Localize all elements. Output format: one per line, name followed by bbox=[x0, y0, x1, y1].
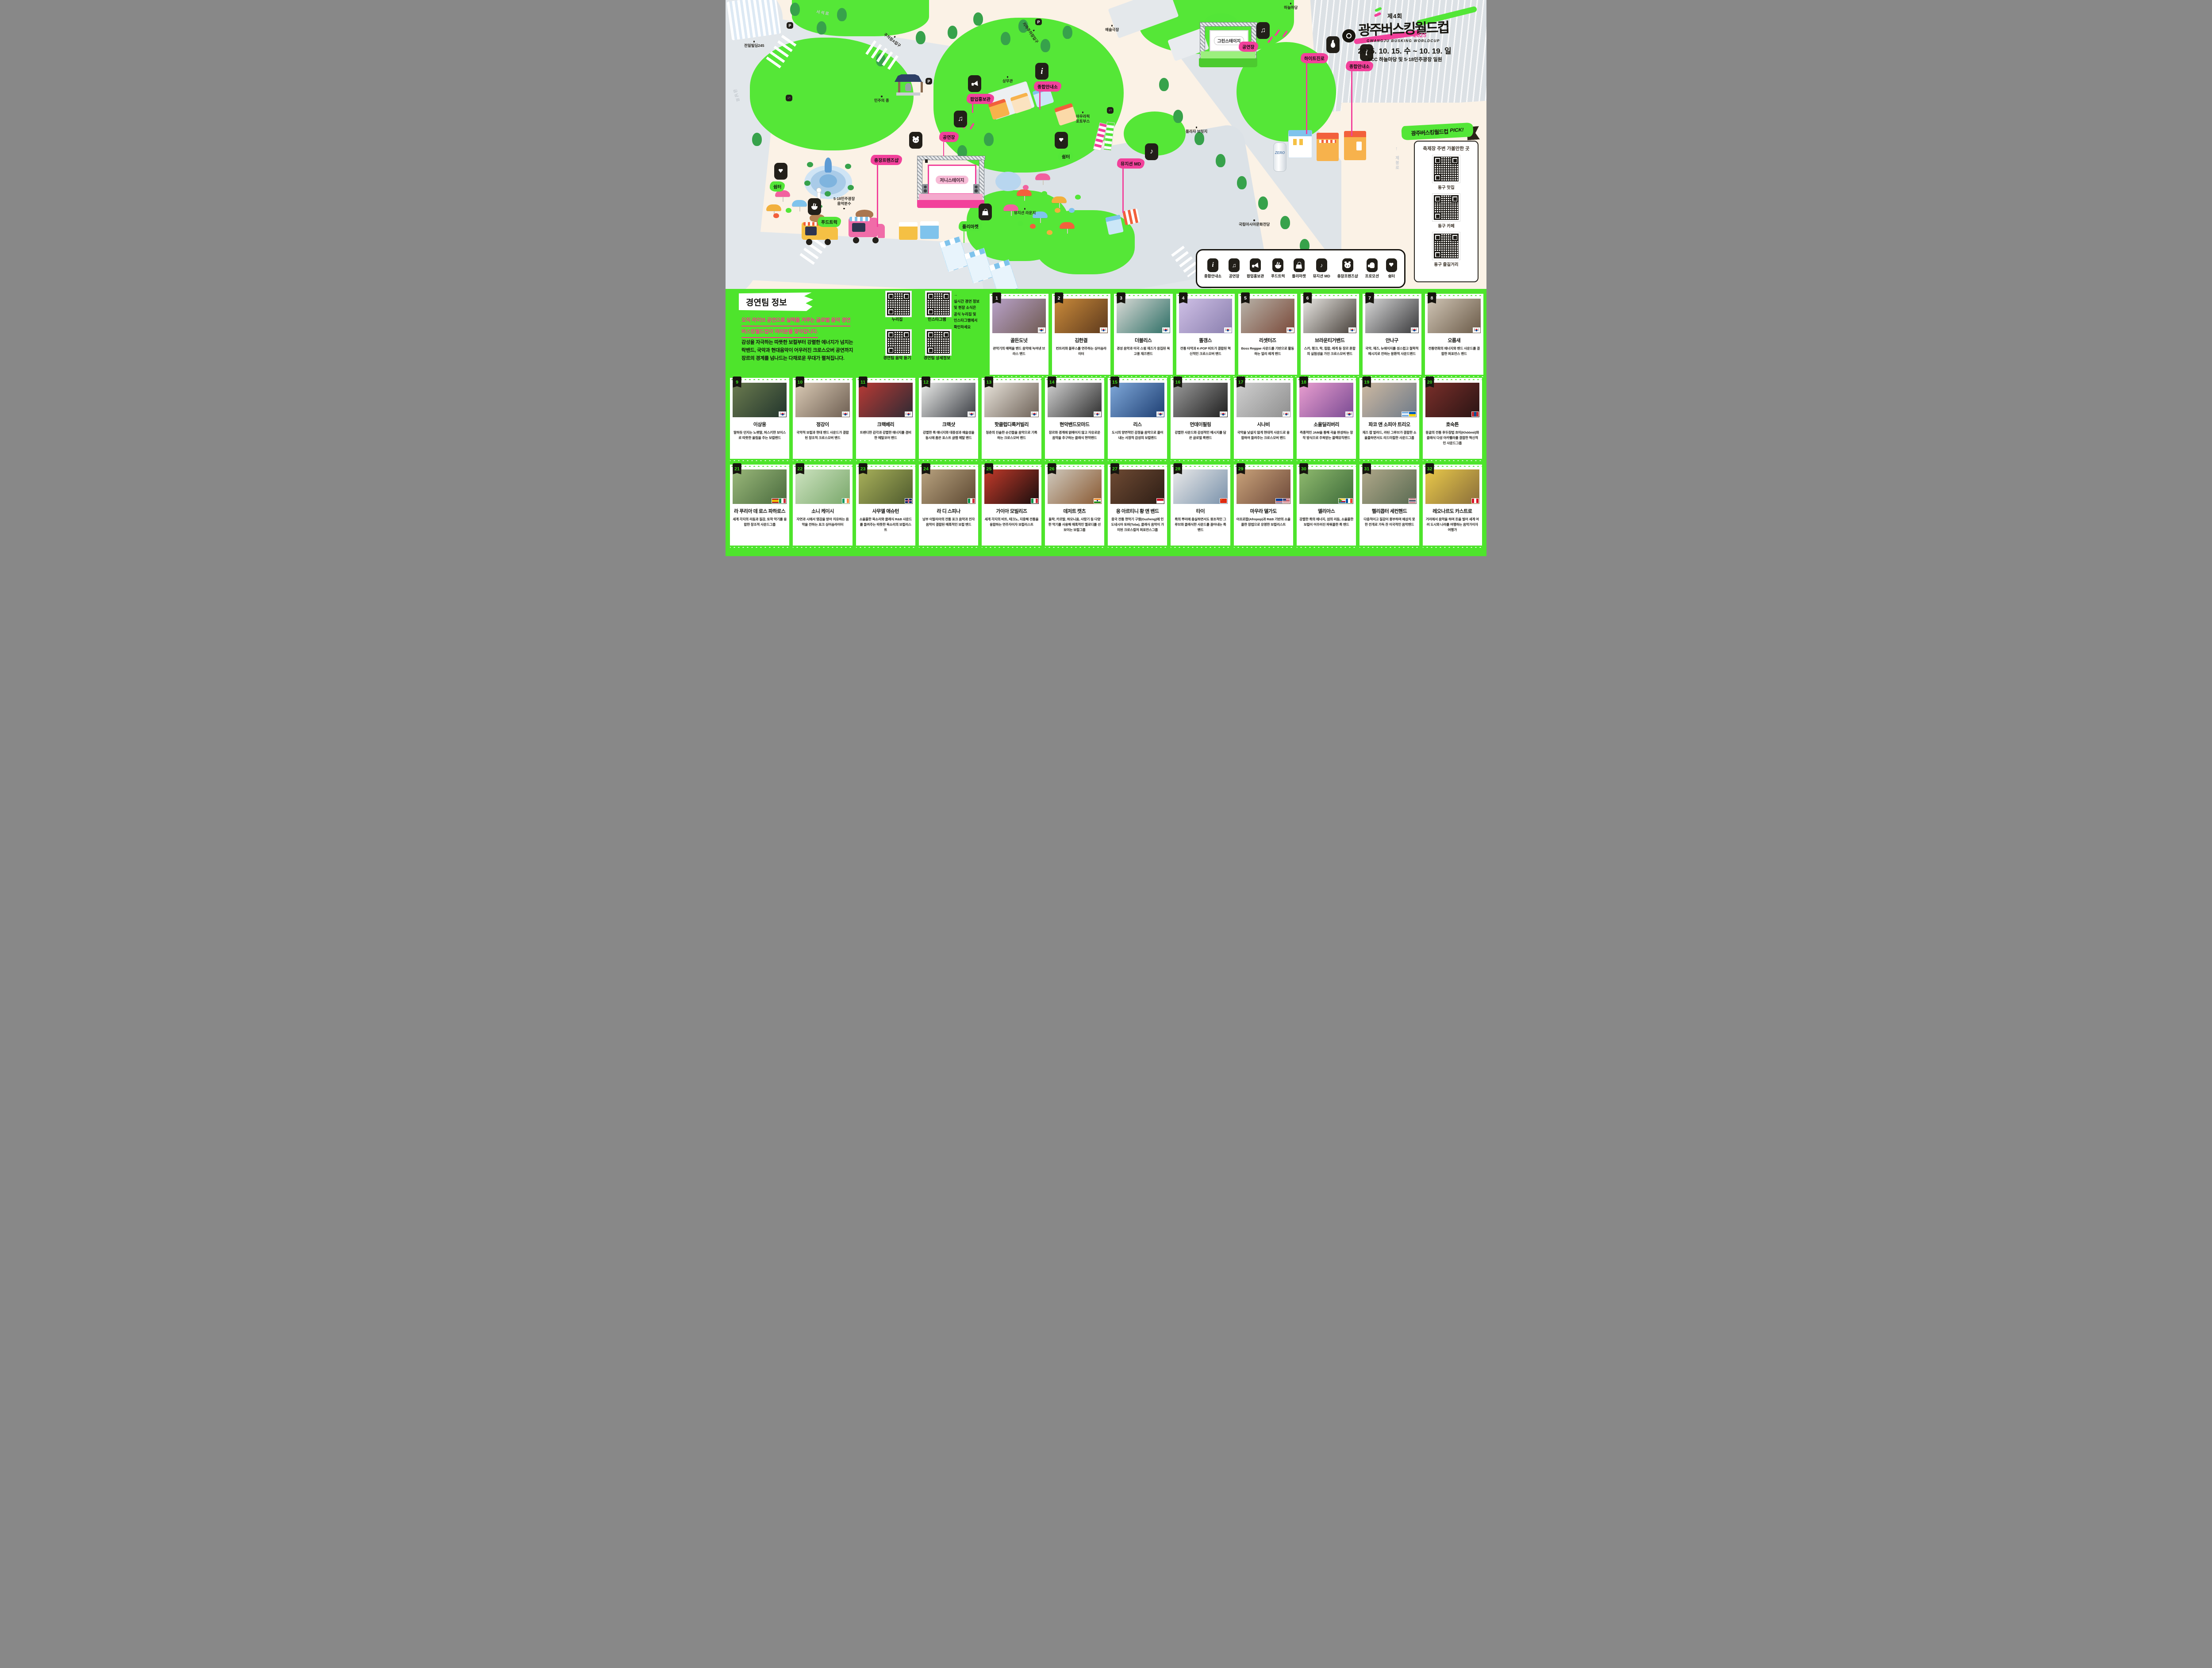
pick-qr-item: 동구 맛집 bbox=[1415, 155, 1478, 190]
flag-kr-icon bbox=[1031, 412, 1038, 417]
team-desc: 국악, 재즈, 뉴에이지를 성스럽고 철학적 메시지로 전하는 몽환적 사운드밴… bbox=[1363, 346, 1421, 357]
festival-poster: 저니스테이지 그린스테이지 bbox=[726, 0, 1486, 556]
legend-item: 프로모션 bbox=[1365, 258, 1379, 279]
team-country-flags bbox=[1472, 412, 1479, 417]
team-number-flag: 9 bbox=[733, 377, 741, 388]
team-photo bbox=[1299, 383, 1353, 417]
team-card[interactable]: 15 리스 도시의 양면적인 감정을 음악으로 풀어내는 서정적 감성의 보컬밴… bbox=[1108, 380, 1167, 459]
flag-kr-icon bbox=[1349, 328, 1356, 333]
team-number-flag: 14 bbox=[1048, 377, 1056, 388]
team-desc: 거리에서 음악을 하며 돈을 벌어 세계 여러 도시와 나라를 여행하는 음악가… bbox=[1423, 517, 1482, 533]
team-country-flags bbox=[1349, 328, 1356, 333]
team-country-flags bbox=[1225, 328, 1231, 333]
team-photo bbox=[795, 383, 849, 417]
qr-homepage[interactable] bbox=[886, 291, 911, 317]
team-country-flags bbox=[842, 499, 849, 503]
bean-bag bbox=[1023, 185, 1029, 190]
team-name: 데저트 캣츠 bbox=[1045, 507, 1104, 515]
team-number-flag: 21 bbox=[733, 463, 741, 474]
flag-kr-icon bbox=[1163, 328, 1169, 333]
teams-section: 경연팀 정보 오직 라이브 공연으로 실력을 겨루는 글로벌 음악 경연 버스킹… bbox=[726, 289, 1486, 556]
foodtruck-bowl-icon bbox=[808, 198, 821, 215]
team-country-flags bbox=[1411, 328, 1418, 333]
flag-kr-icon bbox=[968, 412, 975, 417]
team-name: 브라운티거밴드 bbox=[1301, 337, 1359, 344]
team-country-flags bbox=[968, 499, 975, 503]
team-name: 리스 bbox=[1108, 421, 1167, 428]
flag-kr-icon bbox=[1220, 412, 1227, 417]
qr-note: → 실시간 경연 정보 및 현장 소식은 공식 누리집 및 인스타그램에서 확인… bbox=[954, 292, 983, 330]
flag-kr-icon bbox=[842, 412, 849, 417]
qr-label: 인스타그램 bbox=[921, 316, 953, 322]
team-desc: 록의 뿌리에 충실하면서도 원초적인 그루브와 클래식한 사운드를 끌어내는 록… bbox=[1171, 517, 1230, 533]
team-desc: 관악기의 매력을 밴드 음악에 녹여낸 브라스 밴드 bbox=[990, 346, 1048, 357]
flag-stage: 공연장 bbox=[1239, 42, 1258, 52]
team-desc: 국악을 낯설지 않게 현대적 사운드로 융합하여 들려주는 크로스오버 밴드 bbox=[1234, 430, 1293, 441]
tree bbox=[1173, 110, 1183, 123]
legend-label: 충장프렌즈샵 bbox=[1337, 273, 1358, 279]
team-country-flags bbox=[779, 412, 786, 417]
team-country-flags bbox=[1287, 328, 1294, 333]
info-tent-orange bbox=[1344, 131, 1366, 160]
team-name: 레오나르도 카스트로 bbox=[1423, 507, 1482, 515]
team-card[interactable]: 26 데저트 캣츠 돌락, 카르탈, 하모니움, 사랑기 등 다양한 악기를 사… bbox=[1045, 467, 1104, 546]
tree bbox=[1041, 39, 1050, 52]
team-card[interactable]: 17 시나비 국악을 낯설지 않게 현대적 사운드로 융합하여 들려주는 크로스… bbox=[1234, 380, 1293, 459]
team-card[interactable]: 16 먼데이필링 강렬한 사운드와 감성적인 메시지를 담은 글로벌 록밴드 bbox=[1171, 380, 1230, 459]
team-desc: 강렬한 록 에너지와 대중성과 예술성을 동시에 품은 포스트 글램 메탈 밴드 bbox=[919, 430, 978, 441]
team-name: 크랙베리 bbox=[856, 421, 915, 428]
team-photo bbox=[1237, 383, 1290, 417]
team-name: 사무엘 애슈턴 bbox=[856, 507, 915, 515]
flag-pe-icon bbox=[1472, 499, 1479, 503]
team-desc: 전통연희의 에너지와 밴드 사운드를 결합한 퍼포먼스 밴드 bbox=[1425, 346, 1484, 357]
team-desc: 전통 타악과 K-POP 비트가 결합된 혁신적인 크로스오버 밴드 bbox=[1176, 346, 1235, 357]
flag-fleamarket: 플리마켓 bbox=[959, 221, 982, 231]
team-country-flags bbox=[1100, 328, 1107, 333]
team-card[interactable]: 30 엘리아스 강렬한 록의 에너지, 섬의 리듬, 소울풀한 보컬이 어우러진… bbox=[1297, 467, 1356, 546]
journey-stage-label: 저니스테이지 bbox=[936, 176, 968, 184]
flag-kr-icon bbox=[1287, 328, 1294, 333]
team-number-flag: 20 bbox=[1425, 377, 1434, 388]
team-card[interactable]: 23 사무엘 애슈턴 소울풀한 목소리와 클래식 R&B 사운드를 들려주는 따… bbox=[856, 467, 915, 546]
team-desc: 즉흥적인 JAM을 통해 곡을 완성하는 창작 방식으로 주목받는 블랙뮤직밴드 bbox=[1297, 430, 1356, 441]
team-number-flag: 22 bbox=[795, 463, 804, 474]
team-country-flags bbox=[1409, 499, 1416, 503]
team-photo bbox=[1110, 383, 1164, 417]
team-photo bbox=[984, 383, 1038, 417]
team-name: 정강이 bbox=[793, 421, 852, 428]
tree bbox=[1001, 32, 1010, 45]
bean-bag bbox=[1030, 224, 1036, 229]
team-country-flags bbox=[1346, 412, 1352, 417]
team-photo bbox=[859, 469, 913, 504]
legend-label: 팝업홍보관 bbox=[1247, 273, 1264, 279]
flag-kr-icon bbox=[1283, 412, 1290, 417]
team-card[interactable]: 28 타이 록의 뿌리에 충실하면서도 원초적인 그루브와 클래식한 사운드를 … bbox=[1171, 467, 1230, 546]
umbrella bbox=[766, 204, 781, 211]
bean-bag bbox=[1069, 208, 1075, 213]
legend-item: ♪ 뮤지션 MD bbox=[1313, 258, 1330, 279]
team-number-flag: 28 bbox=[1173, 463, 1182, 474]
flag-ar-icon bbox=[1402, 412, 1409, 417]
note-icon: ♫ bbox=[1229, 258, 1240, 272]
team-country-flags bbox=[1031, 412, 1038, 417]
elevator-icon: ↓↑ bbox=[786, 95, 792, 101]
team-name: 헬리콥터 세컨핸드 bbox=[1359, 507, 1419, 515]
bean-bag bbox=[786, 208, 791, 213]
team-number-flag: 29 bbox=[1237, 463, 1245, 474]
team-country-flags bbox=[772, 499, 786, 503]
flag-kr-icon bbox=[1100, 328, 1107, 333]
pick-card-title: 축제장 주변 가볼만한 곳 bbox=[1415, 145, 1478, 152]
team-desc: 남부 이탈리아의 전통 포크 음악과 전자음악이 결합된 매혹적인 보컬 밴드 bbox=[919, 517, 978, 527]
qr-label: 경연팀 상세정보 bbox=[919, 355, 955, 361]
teams-headline-2: 버스킹월드컵이 여러분을 찾아갑니다. bbox=[741, 328, 818, 338]
legend-item: 플리마켓 bbox=[1292, 258, 1306, 279]
team-number-flag: 25 bbox=[984, 463, 993, 474]
team-number-flag: 4 bbox=[1179, 292, 1188, 304]
flag-popup: 팝업홍보관 bbox=[967, 94, 994, 104]
flag-kr-icon bbox=[1094, 412, 1101, 417]
tree bbox=[1280, 216, 1290, 229]
team-number-flag: 17 bbox=[1237, 377, 1245, 388]
team-name: 엘리아스 bbox=[1297, 507, 1356, 515]
team-desc: 국악적 보컬과 현대 밴드 사운드가 결합된 창조적 크로스오버 밴드 bbox=[793, 430, 852, 441]
poi-musician-lounge: 뮤지션 라운지 bbox=[1014, 208, 1036, 215]
pick-qr-code[interactable] bbox=[1432, 155, 1460, 183]
flag-id-icon bbox=[1157, 499, 1164, 503]
info-icon: i bbox=[1207, 258, 1218, 272]
legend-label: 플리마켓 bbox=[1292, 273, 1306, 279]
poi-jeonil: 전일빌딩245 bbox=[744, 41, 764, 48]
team-country-flags bbox=[1220, 499, 1227, 503]
team-desc: 강렬한 사운드와 감성적인 메시지를 담은 글로벌 록밴드 bbox=[1171, 430, 1230, 441]
team-card[interactable]: 22 소니 케이시 자연과 시에서 영감을 받아 치유하는 음악을 전하는 포크… bbox=[793, 467, 852, 546]
qr-instagram[interactable] bbox=[926, 291, 951, 317]
legend-item: 푸드트럭 bbox=[1271, 258, 1285, 279]
photo-booth bbox=[1096, 122, 1116, 151]
parking-icon: P bbox=[787, 22, 793, 29]
team-name: 오름새 bbox=[1425, 337, 1484, 344]
team-name: 라 푸리아 데 로스 파하로스 bbox=[730, 507, 789, 515]
tree bbox=[817, 21, 826, 35]
tree bbox=[1237, 176, 1247, 189]
team-photo bbox=[922, 383, 975, 417]
umbrella bbox=[1060, 222, 1075, 229]
umbrella bbox=[1052, 196, 1067, 203]
team-number-flag: 27 bbox=[1110, 463, 1119, 474]
team-number-flag: 30 bbox=[1299, 463, 1308, 474]
legend-label: 푸드트럭 bbox=[1271, 273, 1285, 279]
team-desc: 강렬한 록의 에너지, 섬의 리듬, 소울풀한 보컬이 어우러진 파워풀한 록 … bbox=[1297, 517, 1356, 527]
team-desc: 도시의 양면적인 감정을 음악으로 풀어내는 서정적 감성의 보컬밴드 bbox=[1108, 430, 1167, 441]
flag-friends-shop: 충장프렌즈샵 bbox=[871, 155, 902, 165]
flower-icon bbox=[1386, 258, 1397, 272]
team-card[interactable]: 12 크랙샷 강렬한 록 에너지와 대중성과 예술성을 동시에 품은 포스트 글… bbox=[919, 380, 978, 459]
team-country-flags bbox=[968, 412, 975, 417]
team-desc: 경성 음악과 미국 스윙 재즈가 응집된 복고풍 재즈밴드 bbox=[1114, 346, 1173, 357]
team-card[interactable]: 11 크랙베리 트렌디한 감각과 강렬한 에너지를 겸비한 메탈코어 밴드 bbox=[856, 380, 915, 459]
team-number-flag: 10 bbox=[795, 377, 804, 388]
team-card[interactable]: 21 라 푸리아 데 로스 파하로스 세계 각지의 리듬과 질감, 토착 악기를… bbox=[730, 467, 789, 546]
team-desc: 트렌디한 감각과 강렬한 에너지를 겸비한 메탈코어 밴드 bbox=[856, 430, 915, 441]
team-desc: 스카, 펑크, 락, 힙합, 레게 등 장르 혼합의 실험성을 가진 크로스오버… bbox=[1301, 346, 1359, 357]
team-card[interactable]: 18 소울딜리버리 즉흥적인 JAM을 통해 곡을 완성하는 창작 방식으로 주… bbox=[1297, 380, 1356, 459]
team-country-flags bbox=[1283, 412, 1290, 417]
flag-cv-icon bbox=[1276, 499, 1283, 503]
team-photo bbox=[1048, 383, 1102, 417]
teams-section-flag: 경연팀 정보 bbox=[739, 292, 813, 311]
team-photo bbox=[1117, 299, 1170, 333]
team-number-flag: 31 bbox=[1362, 463, 1371, 474]
team-country-flags bbox=[1276, 499, 1290, 503]
music-note-icon: ♫ bbox=[1256, 22, 1270, 39]
flag-in-icon bbox=[1094, 499, 1101, 503]
parking-icon: P bbox=[1035, 19, 1042, 25]
team-name: 파코 앤 소피아 트리오 bbox=[1359, 421, 1419, 428]
team-photo bbox=[1055, 299, 1108, 333]
pick-qr-item: 동구 즐길거리 bbox=[1415, 232, 1478, 267]
team-card[interactable]: 14 현악밴드모마드 장르와 경계에 얽매이지 않고 자유로운 음악을 추구하는… bbox=[1045, 380, 1104, 459]
team-name: 리셋터즈 bbox=[1238, 337, 1297, 344]
map-legend: i 종합안내소♫ 공연장 팝업홍보관 푸드트럭 플리마켓♪ 뮤지션 MD 충장프… bbox=[1196, 249, 1406, 288]
tiger-icon bbox=[909, 132, 922, 149]
megaphone-icon bbox=[968, 75, 981, 92]
team-photo bbox=[1299, 469, 1353, 504]
event-venue: ACC 하늘마당 및 5·18민주광장 일원 bbox=[1327, 56, 1482, 63]
bowl-icon bbox=[1272, 258, 1283, 272]
festival-map: 저니스테이지 그린스테이지 bbox=[726, 0, 1486, 289]
qr-team-music[interactable] bbox=[886, 330, 911, 355]
tree bbox=[1063, 26, 1072, 39]
poi-bell: 민주의 종 bbox=[874, 96, 889, 103]
legend-item: i 종합안내소 bbox=[1204, 258, 1221, 279]
team-country-flags bbox=[1094, 412, 1101, 417]
team-photo bbox=[1241, 299, 1294, 333]
flag-kr-icon bbox=[1411, 328, 1418, 333]
poi-photobooth: 아우라픽 포토부스 bbox=[1076, 111, 1090, 124]
pick-ribbon-pick: PICK! bbox=[1450, 127, 1464, 134]
team-name: 응 아르티니 황 앤 밴드 bbox=[1108, 507, 1167, 515]
team-country-flags bbox=[1473, 328, 1480, 333]
team-card[interactable]: 27 응 아르티니 황 앤 밴드 중국 전통 현악기 구쟁(Guzheng)에 … bbox=[1108, 467, 1167, 546]
team-number-flag: 24 bbox=[922, 463, 930, 474]
flag-info: 종합안내소 bbox=[1034, 81, 1061, 92]
poi-sky-madang: 하늘마당 bbox=[1284, 3, 1298, 10]
flag-kr-icon bbox=[779, 412, 786, 417]
flag-km-icon bbox=[1339, 499, 1345, 503]
event-year: 2025 bbox=[1413, 32, 1426, 38]
team-desc: 말하듯 던지는 노랫말, 허스키한 보이스로 따뜻한 울림을 주는 보컬밴드 bbox=[730, 430, 789, 441]
journey-stage: 저니스테이지 bbox=[917, 156, 984, 208]
team-card[interactable]: 7 안나구 국악, 재즈, 뉴에이지를 성스럽고 철학적 메시지로 전하는 몽환… bbox=[1363, 296, 1421, 375]
team-card[interactable]: 8 오름새 전통연희의 에너지와 밴드 사운드를 결합한 퍼포먼스 밴드 bbox=[1425, 296, 1484, 375]
team-number-flag: 12 bbox=[922, 377, 930, 388]
pick-qr-code[interactable] bbox=[1432, 194, 1460, 221]
team-card[interactable]: 25 가이아 모빌리즈 세계 각지의 비트, 테크노, 지중해 전통을 융합하는… bbox=[982, 467, 1041, 546]
flag-shelter: 쉼터 bbox=[1058, 151, 1073, 161]
bean-bag bbox=[773, 213, 779, 218]
team-card[interactable]: 19 파코 앤 소피아 트리오 재즈 팝 발라드, 라틴 그루브가 결합한 소울… bbox=[1359, 380, 1419, 459]
teams-headline-1: 오직 라이브 공연으로 실력을 겨루는 글로벌 음악 경연 bbox=[741, 316, 850, 327]
friends-tent-blue bbox=[920, 221, 939, 239]
tree bbox=[1216, 154, 1225, 167]
team-number-flag: 2 bbox=[1055, 292, 1064, 304]
team-photo bbox=[1425, 469, 1479, 504]
team-card[interactable]: 1 골든도넛 관악기의 매력을 밴드 음악에 녹여낸 브라스 밴드 bbox=[990, 296, 1048, 375]
team-card[interactable]: 6 브라운티거밴드 스카, 펑크, 락, 힙합, 레게 등 장르 혼합의 실험성… bbox=[1301, 296, 1359, 375]
umbrella bbox=[1035, 173, 1050, 180]
tiger-icon bbox=[1342, 258, 1353, 272]
pick-qr-code[interactable] bbox=[1432, 232, 1460, 260]
team-card[interactable]: 31 헬리콥터 세컨핸드 다층적이고 질감이 풍부하며 예상치 못한 전개로 가… bbox=[1359, 467, 1419, 546]
team-photo bbox=[1179, 299, 1233, 333]
tree bbox=[752, 133, 762, 146]
team-photo bbox=[1425, 383, 1479, 417]
team-cards-row-3: 21 라 푸리아 데 로스 파하로스 세계 각지의 리듬과 질감, 토착 악기를… bbox=[730, 467, 1482, 546]
tree bbox=[790, 3, 800, 16]
team-number-flag: 15 bbox=[1110, 377, 1119, 388]
musician-md-icon: ♪ bbox=[1145, 143, 1158, 160]
poi-acc: 국립아시아문화전당 bbox=[1239, 219, 1270, 227]
legend-label: 공연장 bbox=[1229, 273, 1239, 279]
team-desc: 몽골의 전통 후두창법 흐미(Khöömii)와 클래식 다성 아카펠라를 결합… bbox=[1423, 430, 1482, 446]
tree bbox=[1159, 78, 1169, 91]
flag-stage: 공연장 bbox=[939, 132, 959, 142]
team-name: 김한결 bbox=[1052, 337, 1111, 344]
bean-bag bbox=[1041, 191, 1047, 196]
hite-tent-blue bbox=[1288, 130, 1312, 158]
team-number-flag: 19 bbox=[1362, 377, 1371, 388]
acc-pond bbox=[995, 172, 1021, 191]
team-name: 이상웅 bbox=[730, 421, 789, 428]
team-number-flag: 18 bbox=[1299, 377, 1308, 388]
team-name: 가이아 모빌리즈 bbox=[982, 507, 1041, 515]
flag-hite: 하이트진로 bbox=[1301, 53, 1328, 63]
team-name: 더블리스 bbox=[1114, 337, 1173, 344]
umbrella bbox=[792, 200, 807, 207]
team-card[interactable]: 32 레오나르도 카스트로 거리에서 음악을 하며 돈을 벌어 세계 여러 도시… bbox=[1423, 467, 1482, 546]
team-card[interactable]: 2 김한결 컨트리와 블루스를 연주하는 싱어송라이터 bbox=[1052, 296, 1111, 375]
team-desc: 세계 각지의 비트, 테크노, 지중해 전통을 융합하는 연주자이자 보컬리스트 bbox=[982, 517, 1041, 527]
tree bbox=[837, 8, 847, 21]
pick-card: 축제장 주변 가볼만한 곳 동구 맛집 동구 카페 동구 즐길거리 bbox=[1414, 141, 1479, 282]
tree bbox=[948, 26, 957, 39]
tree bbox=[916, 31, 926, 44]
legend-item: ♫ 공연장 bbox=[1229, 258, 1240, 279]
team-card[interactable]: 29 마우라 델가도 아프로팝(Afropop)과 R&B 기반의 소울풀한 창… bbox=[1234, 467, 1293, 546]
team-photo bbox=[1365, 299, 1419, 333]
team-card[interactable]: 10 정강이 국악적 보컬과 현대 밴드 사운드가 결합된 창조적 크로스오버 … bbox=[793, 380, 852, 459]
team-photo bbox=[795, 469, 849, 504]
flag-kr-icon bbox=[1225, 328, 1231, 333]
flag-th-icon bbox=[1409, 499, 1416, 503]
team-cards-row-2: 9 이상웅 말하듯 던지는 노랫말, 허스키한 보이스로 따뜻한 울림을 주는 … bbox=[730, 380, 1482, 459]
beer-can-label: ZERO bbox=[1274, 151, 1286, 155]
friends-tent-yellow bbox=[899, 222, 918, 240]
flag-musician-md: 뮤지션 MD bbox=[1117, 158, 1144, 169]
team-desc: Boss Reggae 사운드를 기반으로 활동하는 얼리 레게 밴드 bbox=[1238, 346, 1297, 357]
poi-fountain: 5·18민주광장 음악분수 bbox=[833, 196, 855, 209]
team-card[interactable]: 9 이상웅 말하듯 던지는 노랫말, 허스키한 보이스로 따뜻한 울림을 주는 … bbox=[730, 380, 789, 459]
legend-item: 쉼터 bbox=[1386, 258, 1397, 279]
bean-bag bbox=[1047, 230, 1052, 235]
legend-label: 종합안내소 bbox=[1204, 273, 1221, 279]
team-number-flag: 8 bbox=[1428, 292, 1436, 304]
bell-pavilion bbox=[895, 74, 922, 97]
flag-kr-icon bbox=[905, 412, 912, 417]
bag-icon bbox=[1294, 258, 1305, 272]
team-cards-row-1: 1 골든도넛 관악기의 매력을 밴드 음악에 녹여낸 브라스 밴드2 김한결 컨… bbox=[990, 296, 1483, 375]
team-photo bbox=[733, 469, 787, 504]
bean-bag bbox=[1075, 195, 1081, 200]
team-photo bbox=[859, 383, 913, 417]
legend-label: 뮤지션 MD bbox=[1313, 273, 1330, 279]
flag-ie-icon bbox=[842, 499, 849, 503]
hite-tent-orange bbox=[1317, 133, 1339, 161]
teams-body-text: 감성을 자극하는 따뜻한 보컬부터 강렬한 에너지가 넘치는 락밴드, 국악과 … bbox=[741, 339, 853, 362]
team-name: 안나구 bbox=[1363, 337, 1421, 344]
team-number-flag: 6 bbox=[1303, 292, 1312, 304]
pick-qr-label: 동구 카페 bbox=[1415, 223, 1478, 229]
flag-kr-icon bbox=[1038, 328, 1045, 333]
team-card[interactable]: 4 똘갱스 전통 타악과 K-POP 비트가 결합된 혁신적인 크로스오버 밴드 bbox=[1176, 296, 1235, 375]
qr-team-info[interactable] bbox=[926, 330, 951, 355]
team-photo bbox=[1173, 383, 1227, 417]
team-photo bbox=[1237, 469, 1290, 504]
team-desc: 아프로팝(Afropop)과 R&B 기반의 소울풀한 창법으로 유명한 보컬리… bbox=[1234, 517, 1293, 527]
legend-item: 팝업홍보관 bbox=[1247, 258, 1264, 279]
flag-ua-icon bbox=[1409, 412, 1416, 417]
flag-gb-icon bbox=[905, 499, 912, 503]
pick-qr-item: 동구 카페 bbox=[1415, 194, 1478, 229]
team-name: 똘갱스 bbox=[1176, 337, 1235, 344]
team-name: 먼데이필링 bbox=[1171, 421, 1230, 428]
qr-label: 누리집 bbox=[881, 316, 913, 322]
team-number-flag: 1 bbox=[992, 292, 1001, 304]
team-number-flag: 13 bbox=[984, 377, 993, 388]
team-country-flags bbox=[1163, 328, 1169, 333]
team-desc: 자연과 시에서 영감을 받아 치유하는 음악을 전하는 포크 싱어송라이터 bbox=[793, 517, 852, 527]
team-number-flag: 23 bbox=[859, 463, 868, 474]
flag-fr-icon bbox=[1346, 499, 1352, 503]
team-card[interactable]: 24 라 디 스피나 남부 이탈리아의 전통 포크 음악과 전자음악이 결합된 … bbox=[919, 467, 978, 546]
street-jebong: 제봉로 bbox=[1394, 156, 1400, 170]
team-number-flag: 26 bbox=[1048, 463, 1056, 474]
fleamarket-bag-icon bbox=[979, 204, 992, 220]
team-name: 현악밴드모마드 bbox=[1045, 421, 1104, 428]
team-name: 소니 케이시 bbox=[793, 507, 852, 515]
team-card[interactable]: 3 더블리스 경성 음악과 미국 스윙 재즈가 응집된 복고풍 재즈밴드 bbox=[1114, 296, 1173, 375]
team-number-flag: 5 bbox=[1241, 292, 1250, 304]
team-card[interactable]: 20 호숙튼 몽골의 전통 후두창법 흐미(Khöömii)와 클래식 다성 아… bbox=[1423, 380, 1482, 459]
flower-icon bbox=[774, 163, 787, 180]
team-card[interactable]: 13 핫클럽디록커빌리 청춘의 진솔한 순간들을 음악으로 기록하는 크로스오버… bbox=[982, 380, 1041, 459]
flag-it-icon bbox=[1031, 499, 1038, 503]
flag-mn-icon bbox=[1472, 412, 1479, 417]
team-number-flag: 32 bbox=[1425, 463, 1434, 474]
team-card[interactable]: 5 리셋터즈 Boss Reggae 사운드를 기반으로 활동하는 얼리 레게 … bbox=[1238, 296, 1297, 375]
event-dates: 2025. 10. 15. 수 ~ 10. 19. 일 bbox=[1327, 45, 1482, 56]
team-photo bbox=[992, 299, 1046, 333]
mega-icon bbox=[1250, 258, 1261, 272]
pick-qr-label: 동구 즐길거리 bbox=[1415, 261, 1478, 267]
team-country-flags bbox=[1038, 328, 1045, 333]
team-number-flag: 11 bbox=[859, 377, 868, 388]
event-title-en: GWANGJU BUSKING WORLDCUP bbox=[1324, 39, 1483, 43]
team-country-flags bbox=[1157, 499, 1164, 503]
